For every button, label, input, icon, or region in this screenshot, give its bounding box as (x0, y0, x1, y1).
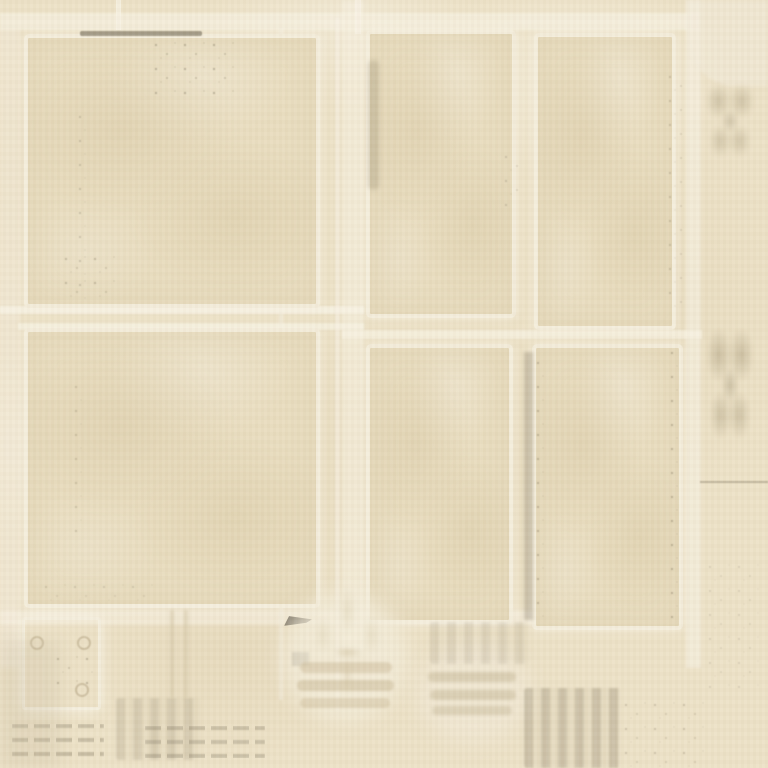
mid-panel-left-streak (368, 60, 379, 190)
square-rivet-2 (77, 636, 91, 650)
top-border-ink-dash (80, 31, 202, 36)
frame-corner-stain (60, 252, 116, 304)
ghost-stamp-block-upper (430, 622, 530, 664)
right-margin-lower-marks (704, 560, 760, 690)
fleur-base-bar-2 (297, 680, 394, 691)
right-margin-rule-line (700, 481, 768, 483)
fleur-base-bar-1 (300, 662, 392, 673)
right-margin-stain-top (698, 68, 762, 186)
aged-paper-sheet (0, 0, 768, 768)
ghost-stamp-bar-2 (430, 690, 516, 700)
stain-and-smudge-layer (0, 0, 768, 768)
bottom-right-panel-right-speckles (666, 346, 682, 628)
top-left-frame-speckle-cluster (150, 38, 238, 96)
panel2-left-border-speckles (70, 380, 84, 540)
ghost-stamp-bar-1 (428, 672, 516, 682)
ghost-pill-block (116, 698, 200, 760)
ghost-double-streak (170, 610, 188, 698)
bottom-right-dense-stain (524, 688, 620, 768)
bottom-right-panel-left-speckles (532, 356, 545, 618)
ghost-stamp-bar-3 (432, 706, 512, 715)
bottom-left-corner-shade (0, 640, 60, 768)
fleur-base-bar-3 (300, 698, 390, 708)
bottom-right-mottle (620, 698, 706, 768)
right-margin-stain-mid (699, 305, 761, 483)
mid-panel-right-corner-stain (500, 150, 520, 210)
bottom-left-panel-bottom-speckles (40, 580, 160, 606)
right-panel-edge-stain (664, 70, 682, 310)
